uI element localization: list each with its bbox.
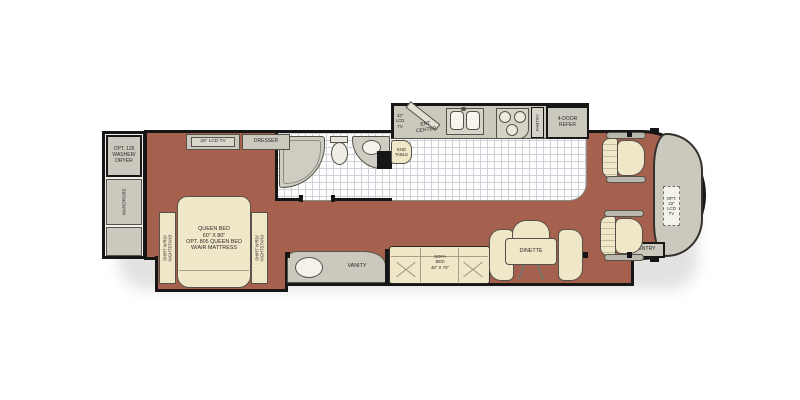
sofa-cushion-seam: [420, 248, 421, 282]
seat-back: [600, 216, 616, 256]
washer-dryer-label: OPT. 126 WASHER/ DRYER: [106, 135, 142, 177]
wall-tick: [627, 252, 632, 258]
bathroom-wall-bottom-right: [331, 198, 392, 201]
vanity-sink: [295, 257, 323, 278]
seat-back: [602, 138, 618, 178]
queen-bed-label: QUEEN BED 60" X 80" OPT. 805 QUEEN BED W…: [177, 214, 251, 264]
dinette-label: DINETTE: [505, 238, 557, 265]
wall-tick: [650, 128, 659, 133]
sink-basin-left: [450, 111, 464, 130]
storage-cabinet: [106, 227, 142, 256]
sink-basin-right: [466, 111, 480, 130]
sofa-bed-label: SOFA BED 46" X 76": [424, 249, 456, 275]
end-table-label: END TABLE: [391, 140, 412, 164]
stove-burner: [506, 124, 518, 136]
bed-seam-line: [179, 270, 249, 271]
driver-seat: [600, 130, 650, 184]
floorplan-canvas: OPT. 126 WASHER/ DRYER WARDROBE 26" LCD …: [0, 0, 800, 400]
seat-cushion: [615, 218, 643, 254]
toilet-bowl: [331, 142, 348, 165]
refrigerator-label: 4-DOOR REFER: [546, 106, 589, 139]
nightstand-right-label: SHIRT W'RD/ NIGHTSTAND: [251, 212, 268, 284]
wall-tick: [285, 252, 290, 258]
seat-armrest-bottom: [604, 254, 644, 261]
faucet: [461, 107, 466, 111]
cockpit-tv-label: OPT. 32" LCD TV: [663, 186, 680, 226]
sofa-cushion-seam: [458, 248, 459, 282]
wall-tick: [627, 131, 632, 137]
bathroom-door-cap: [299, 195, 303, 202]
wall-tick: [650, 257, 659, 262]
seat-cushion: [617, 140, 645, 176]
seat-armrest-bottom: [606, 176, 646, 183]
bedroom-tv-label: 26" LCD TV: [191, 137, 235, 147]
wardrobe-label: WARDROBE: [106, 179, 142, 225]
wall-tick: [583, 252, 588, 258]
pantry-label: PANTRY: [531, 107, 544, 138]
passenger-seat: [598, 208, 648, 262]
nightstand-left-label: SHIRT W'RD/ NIGHTSTAND: [159, 212, 176, 284]
dinette-bench-right: [558, 229, 583, 281]
stove-burner: [499, 111, 511, 123]
pocket-door-wall: [377, 151, 392, 169]
dresser-label: DRESSER: [242, 134, 290, 150]
bathroom-wall-bottom-left: [275, 198, 302, 201]
bathroom-door-cap: [331, 195, 335, 202]
stove-burner: [514, 111, 526, 123]
vanity-label: VANITY: [332, 258, 382, 274]
